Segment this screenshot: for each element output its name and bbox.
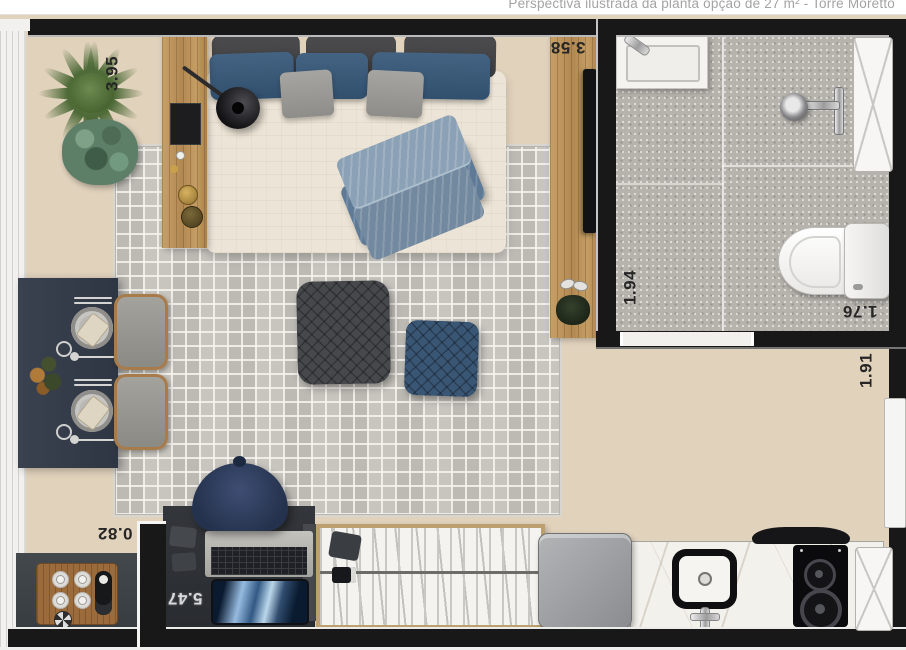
window-corner-frame <box>0 19 30 31</box>
gray-pillow <box>366 70 424 119</box>
refrigerator <box>538 533 632 629</box>
dimension-apartment-length: 5.47 <box>161 590 209 607</box>
pouf-small <box>404 320 480 398</box>
napkin <box>76 395 111 431</box>
laptop-keyboard <box>211 547 307 575</box>
office-chair-knob <box>233 456 246 467</box>
lamp-shade-center <box>232 102 244 114</box>
napkin <box>76 312 111 348</box>
dimension-living-width: 3.95 <box>104 50 121 98</box>
pouf-large <box>296 280 391 385</box>
dimension-bathroom-length: 1.76 <box>836 303 884 320</box>
toilet-tank <box>844 223 890 299</box>
desk-gadget <box>328 531 362 562</box>
cutlery <box>74 297 112 299</box>
bedside-tablet <box>170 103 201 145</box>
bronze-vase <box>181 206 203 228</box>
plant-decor <box>556 295 590 325</box>
brass-vase <box>178 185 198 205</box>
table-centerpiece <box>26 351 64 395</box>
cutlery <box>74 384 112 386</box>
kitchen-faucet-handle <box>690 613 720 621</box>
bathroom-door-opening <box>620 332 754 346</box>
gray-pillow <box>279 69 334 119</box>
brass-decor <box>170 165 178 173</box>
kitchen-sink <box>672 549 737 609</box>
plate <box>71 307 113 349</box>
tv <box>583 69 597 233</box>
wall-bathroom-left <box>596 19 616 347</box>
cabinet-right-bottom <box>855 547 893 631</box>
grinder-top <box>99 575 108 584</box>
range-hood <box>752 527 850 544</box>
dining-chair <box>114 374 168 450</box>
dimension-bathroom-width: 1.94 <box>622 264 639 312</box>
wall-kitchen-divider <box>137 521 166 650</box>
burner-small <box>804 559 836 591</box>
bowl <box>52 592 69 609</box>
bowl <box>74 571 91 588</box>
pepper-grinder <box>95 571 112 615</box>
dimension-tv-wall: 3.58 <box>544 39 592 56</box>
cutlery <box>74 379 112 381</box>
potted-plant <box>26 27 156 187</box>
burner-center <box>815 570 823 578</box>
burner-center <box>815 604 825 614</box>
spoon-bowl <box>70 435 79 444</box>
laptop-screen <box>211 579 309 625</box>
shower-wall-bar <box>834 87 844 135</box>
caption: Perspectiva ilustrada da planta opção de… <box>508 0 895 11</box>
tile-grout-line <box>614 183 724 185</box>
desk-pad <box>169 526 197 549</box>
dimension-entry-width: 1.91 <box>858 347 875 395</box>
toilet-seat <box>789 236 841 288</box>
knob <box>176 151 185 160</box>
throw-blanket <box>338 127 488 259</box>
entry-door <box>884 398 906 528</box>
spoon <box>78 439 114 441</box>
dimension-kitchen-corner: 0.82 <box>91 525 139 542</box>
sink-drain <box>698 572 712 586</box>
wall-lamp <box>216 87 260 129</box>
floor-plan: 3.95 3.58 1.94 1.76 1.91 0.82 5.47 <box>0 14 906 650</box>
bowl <box>74 592 91 609</box>
bathroom-sink <box>616 35 708 89</box>
burner-large <box>800 589 842 631</box>
floorplan-screenshot: Perspectiva ilustrada da planta opção de… <box>0 0 906 650</box>
wall-top <box>28 19 906 37</box>
succulent-plant <box>62 119 138 185</box>
toilet-bowl <box>778 227 852 295</box>
toilet-flush-button <box>853 284 863 290</box>
dining-chair <box>114 294 168 370</box>
cooktop <box>793 545 848 627</box>
cooktop-control <box>800 549 803 552</box>
spoon <box>78 356 114 358</box>
smartphone <box>332 567 356 583</box>
cutlery <box>74 302 112 304</box>
spoon-bowl <box>70 352 79 361</box>
window-right-top <box>853 37 893 172</box>
shower-head <box>780 93 808 121</box>
shower-arm <box>804 101 840 110</box>
plate <box>71 390 113 432</box>
cooktop-control <box>838 549 841 552</box>
bowl <box>52 571 69 588</box>
desk-pad <box>171 552 196 572</box>
